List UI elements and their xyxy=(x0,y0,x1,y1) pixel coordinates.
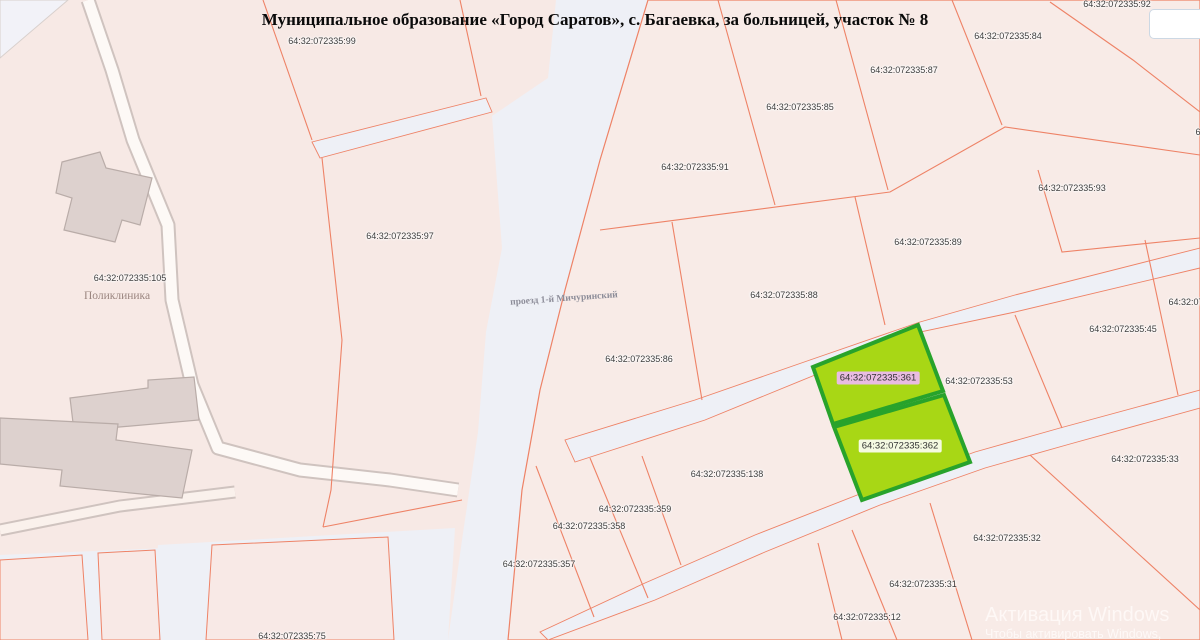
windows-activation-watermark-sub: Чтобы активировать Windows, перейдите xyxy=(985,627,1200,640)
windows-activation-watermark: Активация Windows xyxy=(985,604,1169,627)
parcel[interactable] xyxy=(0,555,88,640)
cadastral-map[interactable]: Муниципальное образование «Город Саратов… xyxy=(0,0,1200,640)
parcel-75[interactable] xyxy=(206,537,394,640)
map-canvas xyxy=(0,0,1200,640)
map-title: Муниципальное образование «Город Саратов… xyxy=(95,10,1095,30)
parcel[interactable] xyxy=(98,550,160,640)
popup-box[interactable] xyxy=(1149,9,1200,39)
right-quarter xyxy=(508,0,1200,640)
